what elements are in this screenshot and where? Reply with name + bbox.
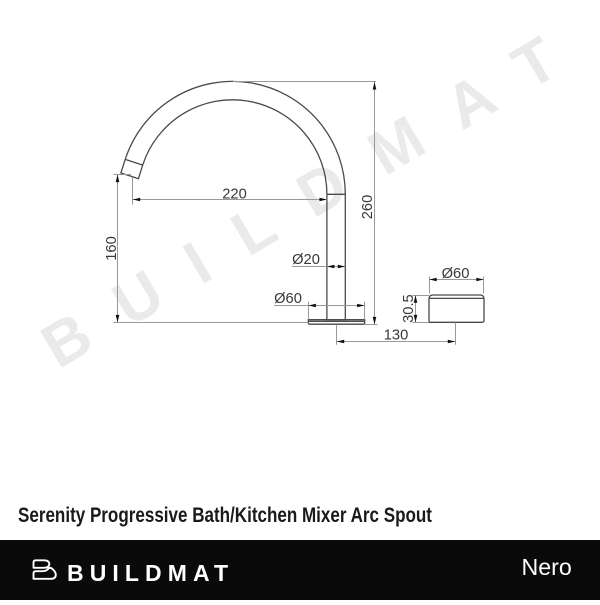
svg-text:130: 130: [384, 328, 409, 344]
svg-text:160: 160: [104, 236, 120, 261]
svg-text:220: 220: [222, 187, 247, 203]
svg-text:Ø60: Ø60: [274, 291, 302, 307]
svg-text:30.5: 30.5: [401, 294, 417, 323]
svg-text:Ø20: Ø20: [292, 252, 320, 268]
svg-text:260: 260: [360, 195, 376, 220]
svg-text:Ø60: Ø60: [442, 266, 470, 282]
